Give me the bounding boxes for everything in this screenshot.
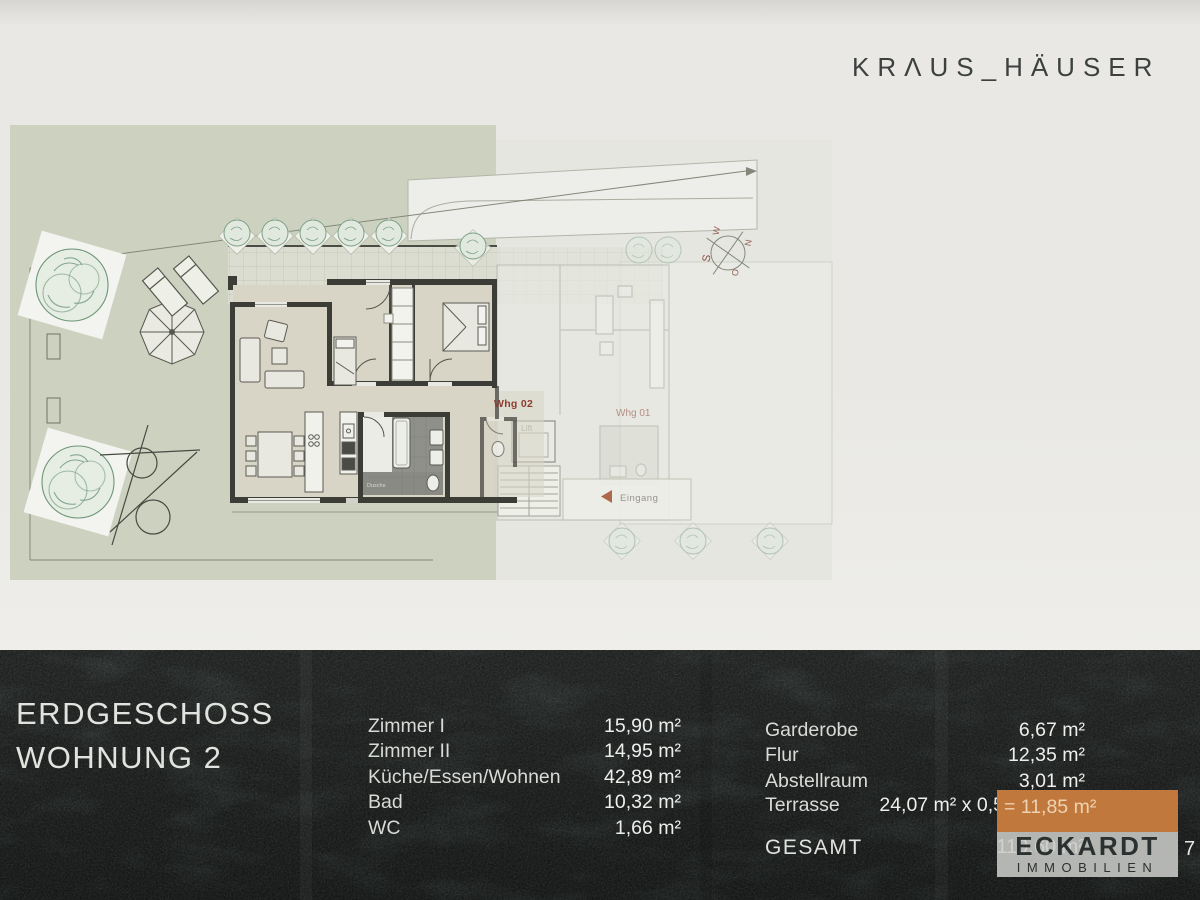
floor-plan: Lift Eingang W N S O — [0, 0, 840, 660]
room-row: Küche/Essen/Wohnen42,89 m² — [368, 765, 681, 790]
room-row: WC1,66 m² — [368, 816, 681, 841]
plan-title-line1: ERDGESCHOSS — [16, 692, 274, 736]
gesamt-label: GESAMT — [765, 836, 863, 860]
room-row: Zimmer II14,95 m² — [368, 739, 681, 764]
kraus-haeuser-logo: KRΛUS_HÄUSER — [852, 52, 1182, 83]
eckardt-logo-orange-bar: = 11,85 m² — [997, 790, 1178, 832]
page-number: 7 — [1184, 838, 1195, 861]
eckardt-logo-line2: IMMOBILIEN — [997, 860, 1178, 875]
room-list-left: Zimmer I15,90 m² Zimmer II14,95 m² Küche… — [368, 714, 681, 841]
terrasse-result: = 11,85 m² — [997, 790, 1178, 819]
room-row: Zimmer I15,90 m² — [368, 714, 681, 739]
footer-panel: ERDGESCHOSS WOHNUNG 2 Zimmer I15,90 m² Z… — [0, 650, 1200, 900]
entrance: Eingang — [563, 479, 691, 520]
room-row: Flur12,35 m² — [765, 743, 1085, 768]
room-row: Garderobe6,67 m² — [765, 718, 1085, 743]
room-list-right: Garderobe6,67 m² Flur12,35 m² Abstellrau… — [765, 718, 1085, 794]
bathroom: Dusche — [363, 417, 443, 495]
plan-title: ERDGESCHOSS WOHNUNG 2 — [16, 692, 274, 780]
eingang-label: Eingang — [620, 493, 658, 504]
eckardt-logo-line1: ECKARDT — [997, 833, 1178, 860]
eckardt-immobilien-logo: ECKARDT IMMOBILIEN — [997, 832, 1178, 877]
whg02-label: Whg 02 — [494, 398, 533, 410]
whg01-label: Whg 01 — [616, 408, 651, 419]
room-row: Bad10,32 m² — [368, 790, 681, 815]
brochure-page: KRΛUS_HÄUSER — [0, 0, 1200, 900]
plan-title-line2: WOHNUNG 2 — [16, 736, 274, 780]
dusche-label: Dusche — [367, 483, 386, 489]
terrasse-calc: 24,07 m² x 0,5 — [765, 794, 1004, 817]
